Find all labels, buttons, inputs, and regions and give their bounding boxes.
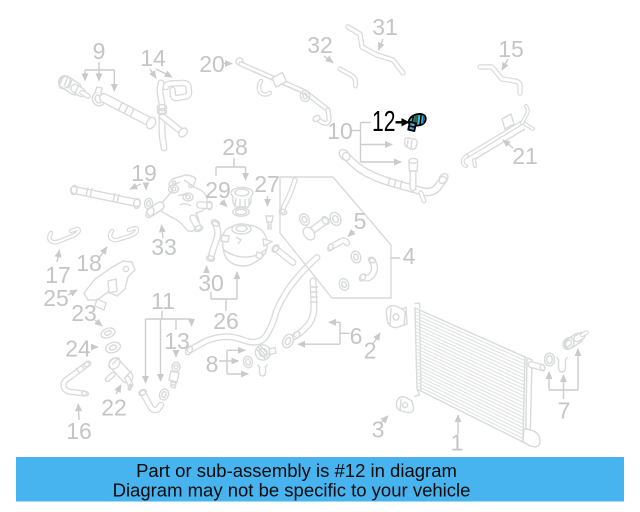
svg-text:19: 19 xyxy=(131,160,157,186)
svg-text:8: 8 xyxy=(206,351,219,377)
svg-text:21: 21 xyxy=(512,143,538,169)
svg-text:11: 11 xyxy=(151,288,175,314)
svg-text:12: 12 xyxy=(372,106,396,138)
svg-text:10: 10 xyxy=(327,118,353,144)
svg-text:20: 20 xyxy=(199,51,225,77)
svg-text:4: 4 xyxy=(403,243,416,269)
svg-text:33: 33 xyxy=(151,234,177,260)
svg-text:6: 6 xyxy=(350,323,363,349)
svg-text:3: 3 xyxy=(372,417,385,443)
svg-text:28: 28 xyxy=(222,134,248,160)
svg-text:25: 25 xyxy=(43,285,69,311)
svg-text:32: 32 xyxy=(307,32,333,58)
svg-text:26: 26 xyxy=(213,308,239,334)
svg-text:29: 29 xyxy=(205,177,231,203)
svg-text:7: 7 xyxy=(558,398,571,424)
svg-text:14: 14 xyxy=(140,45,166,71)
svg-text:22: 22 xyxy=(101,395,127,421)
svg-text:30: 30 xyxy=(198,270,224,296)
svg-text:Diagram may not be specific to: Diagram may not be specific to your vehi… xyxy=(113,480,471,501)
svg-text:23: 23 xyxy=(71,300,97,326)
svg-text:18: 18 xyxy=(76,250,102,276)
svg-text:24: 24 xyxy=(65,336,91,362)
svg-text:2: 2 xyxy=(364,338,377,364)
svg-text:5: 5 xyxy=(354,208,367,234)
svg-text:9: 9 xyxy=(93,38,106,64)
svg-text:Part or sub-assembly is #12 in: Part or sub-assembly is #12 in diagram xyxy=(136,460,457,481)
svg-text:31: 31 xyxy=(372,14,398,40)
svg-text:16: 16 xyxy=(66,418,92,444)
svg-text:13: 13 xyxy=(164,328,190,354)
svg-text:15: 15 xyxy=(498,36,524,62)
svg-text:27: 27 xyxy=(254,171,280,197)
svg-text:1: 1 xyxy=(451,430,464,456)
